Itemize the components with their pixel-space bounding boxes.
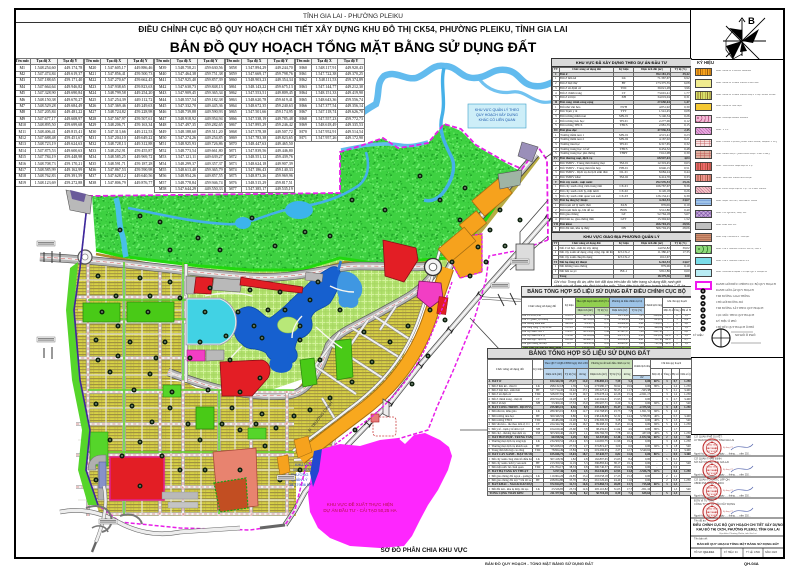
svg-text:XÁC NHẬN: XÁC NHẬN xyxy=(706,447,718,450)
svg-text:HỒ SƠ: QH-04A: HỒ SƠ: QH-04A xyxy=(694,550,715,554)
svg-text:Người ký: ....................: Người ký: .................... ngày.....… xyxy=(694,515,751,518)
svg-text:B: B xyxy=(748,16,755,27)
svg-text:Người ký: ....................: Người ký: .................... ngày.....… xyxy=(694,453,751,456)
svg-text:KHU ĐÔ THỊ CK54, PHƯỜNG PLEIKU: KHU ĐÔ THỊ CK54, PHƯỜNG PLEIKU, TỈNH GIA… xyxy=(696,527,779,532)
svg-text:UBND TỈNH: UBND TỈNH xyxy=(707,465,718,468)
svg-text:KÝ HIỆU: 04: KÝ HIỆU: 04 xyxy=(724,551,738,554)
svg-text:Địa điểm: Phường Pleiku, tỉnh: Địa điểm: Phường Pleiku, tỉnh Gia Lai xyxy=(720,532,757,535)
svg-text:SƠ ĐỒ Ô PHỐ: SƠ ĐỒ Ô PHỐ xyxy=(735,332,756,337)
svg-text:UBND TỈNH: UBND TỈNH xyxy=(707,443,718,446)
svg-text:KÝ HIỆU: KÝ HIỆU xyxy=(693,332,704,337)
svg-text:CƠ QUAN PHÊ DUYỆT:: CƠ QUAN PHÊ DUYỆT: xyxy=(694,434,723,439)
svg-text:BẢN ĐỒ QUY HOẠCH TỔNG MẶT BẰNG: BẢN ĐỒ QUY HOẠCH TỔNG MẶT BẰNG SỬ DỤNG Đ… xyxy=(697,541,779,546)
svg-text:Ký thay CT: Ký thay CT xyxy=(723,510,734,513)
svg-text:Người ký: ....................: Người ký: .................... ngày.....… xyxy=(694,495,751,498)
svg-text:Người ký: ....................: Người ký: .................... ngày.....… xyxy=(694,474,751,477)
svg-text:Tên đồ án:: Tên đồ án: xyxy=(694,519,707,523)
svg-text:XÁC NHẬN: XÁC NHẬN xyxy=(706,469,718,472)
svg-text:UBND TỈNH: UBND TỈNH xyxy=(707,486,718,489)
svg-text:NĂM: 2023: NĂM: 2023 xyxy=(765,551,778,554)
svg-text:TỶ LỆ: 1/500: TỶ LỆ: 1/500 xyxy=(746,551,761,554)
svg-text:ĐIỀU CHỈNH CỤC BỘ QUY HOẠCH CH: ĐIỀU CHỈNH CỤC BỘ QUY HOẠCH CHI TIẾT XÂY… xyxy=(693,522,783,527)
svg-text:Ký thay CT: Ký thay CT xyxy=(723,446,734,449)
svg-text:UBND TỈNH: UBND TỈNH xyxy=(707,507,718,510)
svg-text:Ký thay CT: Ký thay CT xyxy=(723,489,734,492)
svg-text:Tên bản vẽ:: Tên bản vẽ: xyxy=(694,537,708,541)
svg-text:Ký thay CT: Ký thay CT xyxy=(723,468,734,471)
svg-text:XÁC NHẬN: XÁC NHẬN xyxy=(706,490,718,493)
